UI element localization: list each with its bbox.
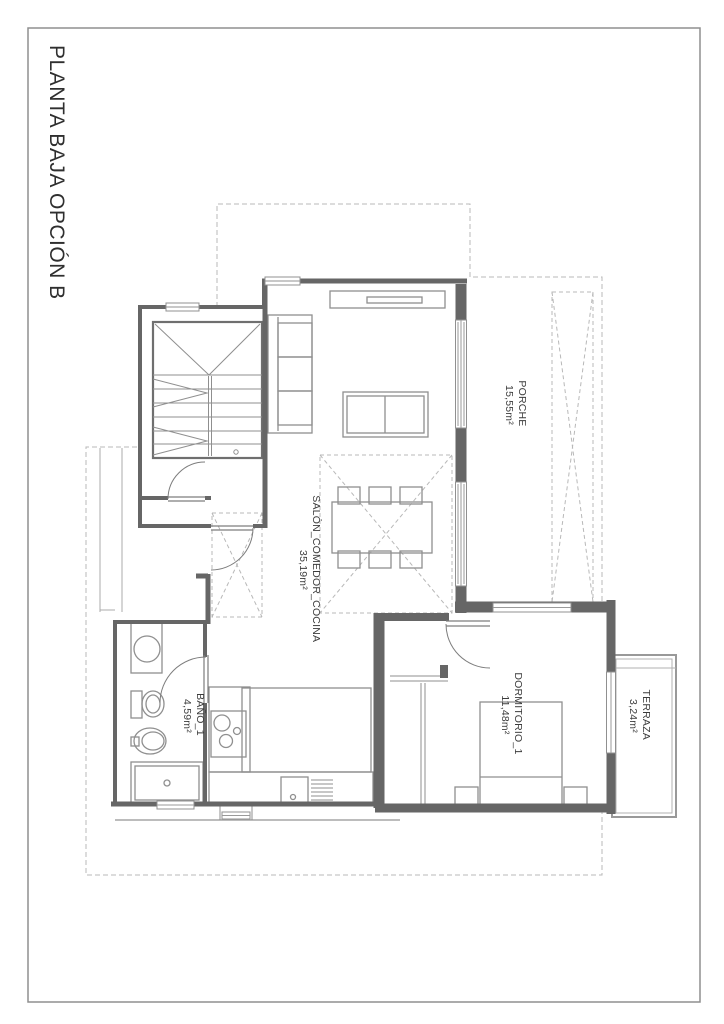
window-stairhall [166, 303, 199, 311]
room-area: 3,24m² [627, 699, 639, 733]
window-bedroom-porch [493, 603, 571, 612]
room-area: 11,48m² [499, 695, 511, 734]
window-bathroom [157, 801, 194, 809]
room-area: 35,19m² [297, 550, 309, 590]
room-name: PORCHE [516, 380, 528, 426]
room-name: SALÓN_COMEDOR_COCINA [310, 495, 323, 642]
floor-plan-canvas: PLANTA BAJA OPCIÓN B PORCHE 15,55m² SALÓ… [0, 0, 724, 1024]
room-name: DORMITORIO_1 [512, 672, 524, 754]
room-name: BAÑO_1 [194, 693, 207, 736]
room-area: 4,59m² [181, 699, 193, 733]
window-bedroom-right [607, 672, 616, 753]
window-salon-porch-1 [456, 320, 467, 428]
page-title: PLANTA BAJA OPCIÓN B [45, 45, 68, 300]
room-area: 15,55m² [503, 385, 515, 425]
window-top [265, 277, 300, 285]
sheet-border [28, 28, 700, 1002]
drawing-sheet: PLANTA BAJA OPCIÓN B PORCHE 15,55m² SALÓ… [0, 0, 724, 1024]
window-salon-porch-2 [456, 482, 467, 586]
room-label-porche: PORCHE 15,55m² [503, 380, 528, 429]
door-kitchen-rear [222, 812, 250, 819]
room-name: TERRAZA [640, 690, 652, 740]
